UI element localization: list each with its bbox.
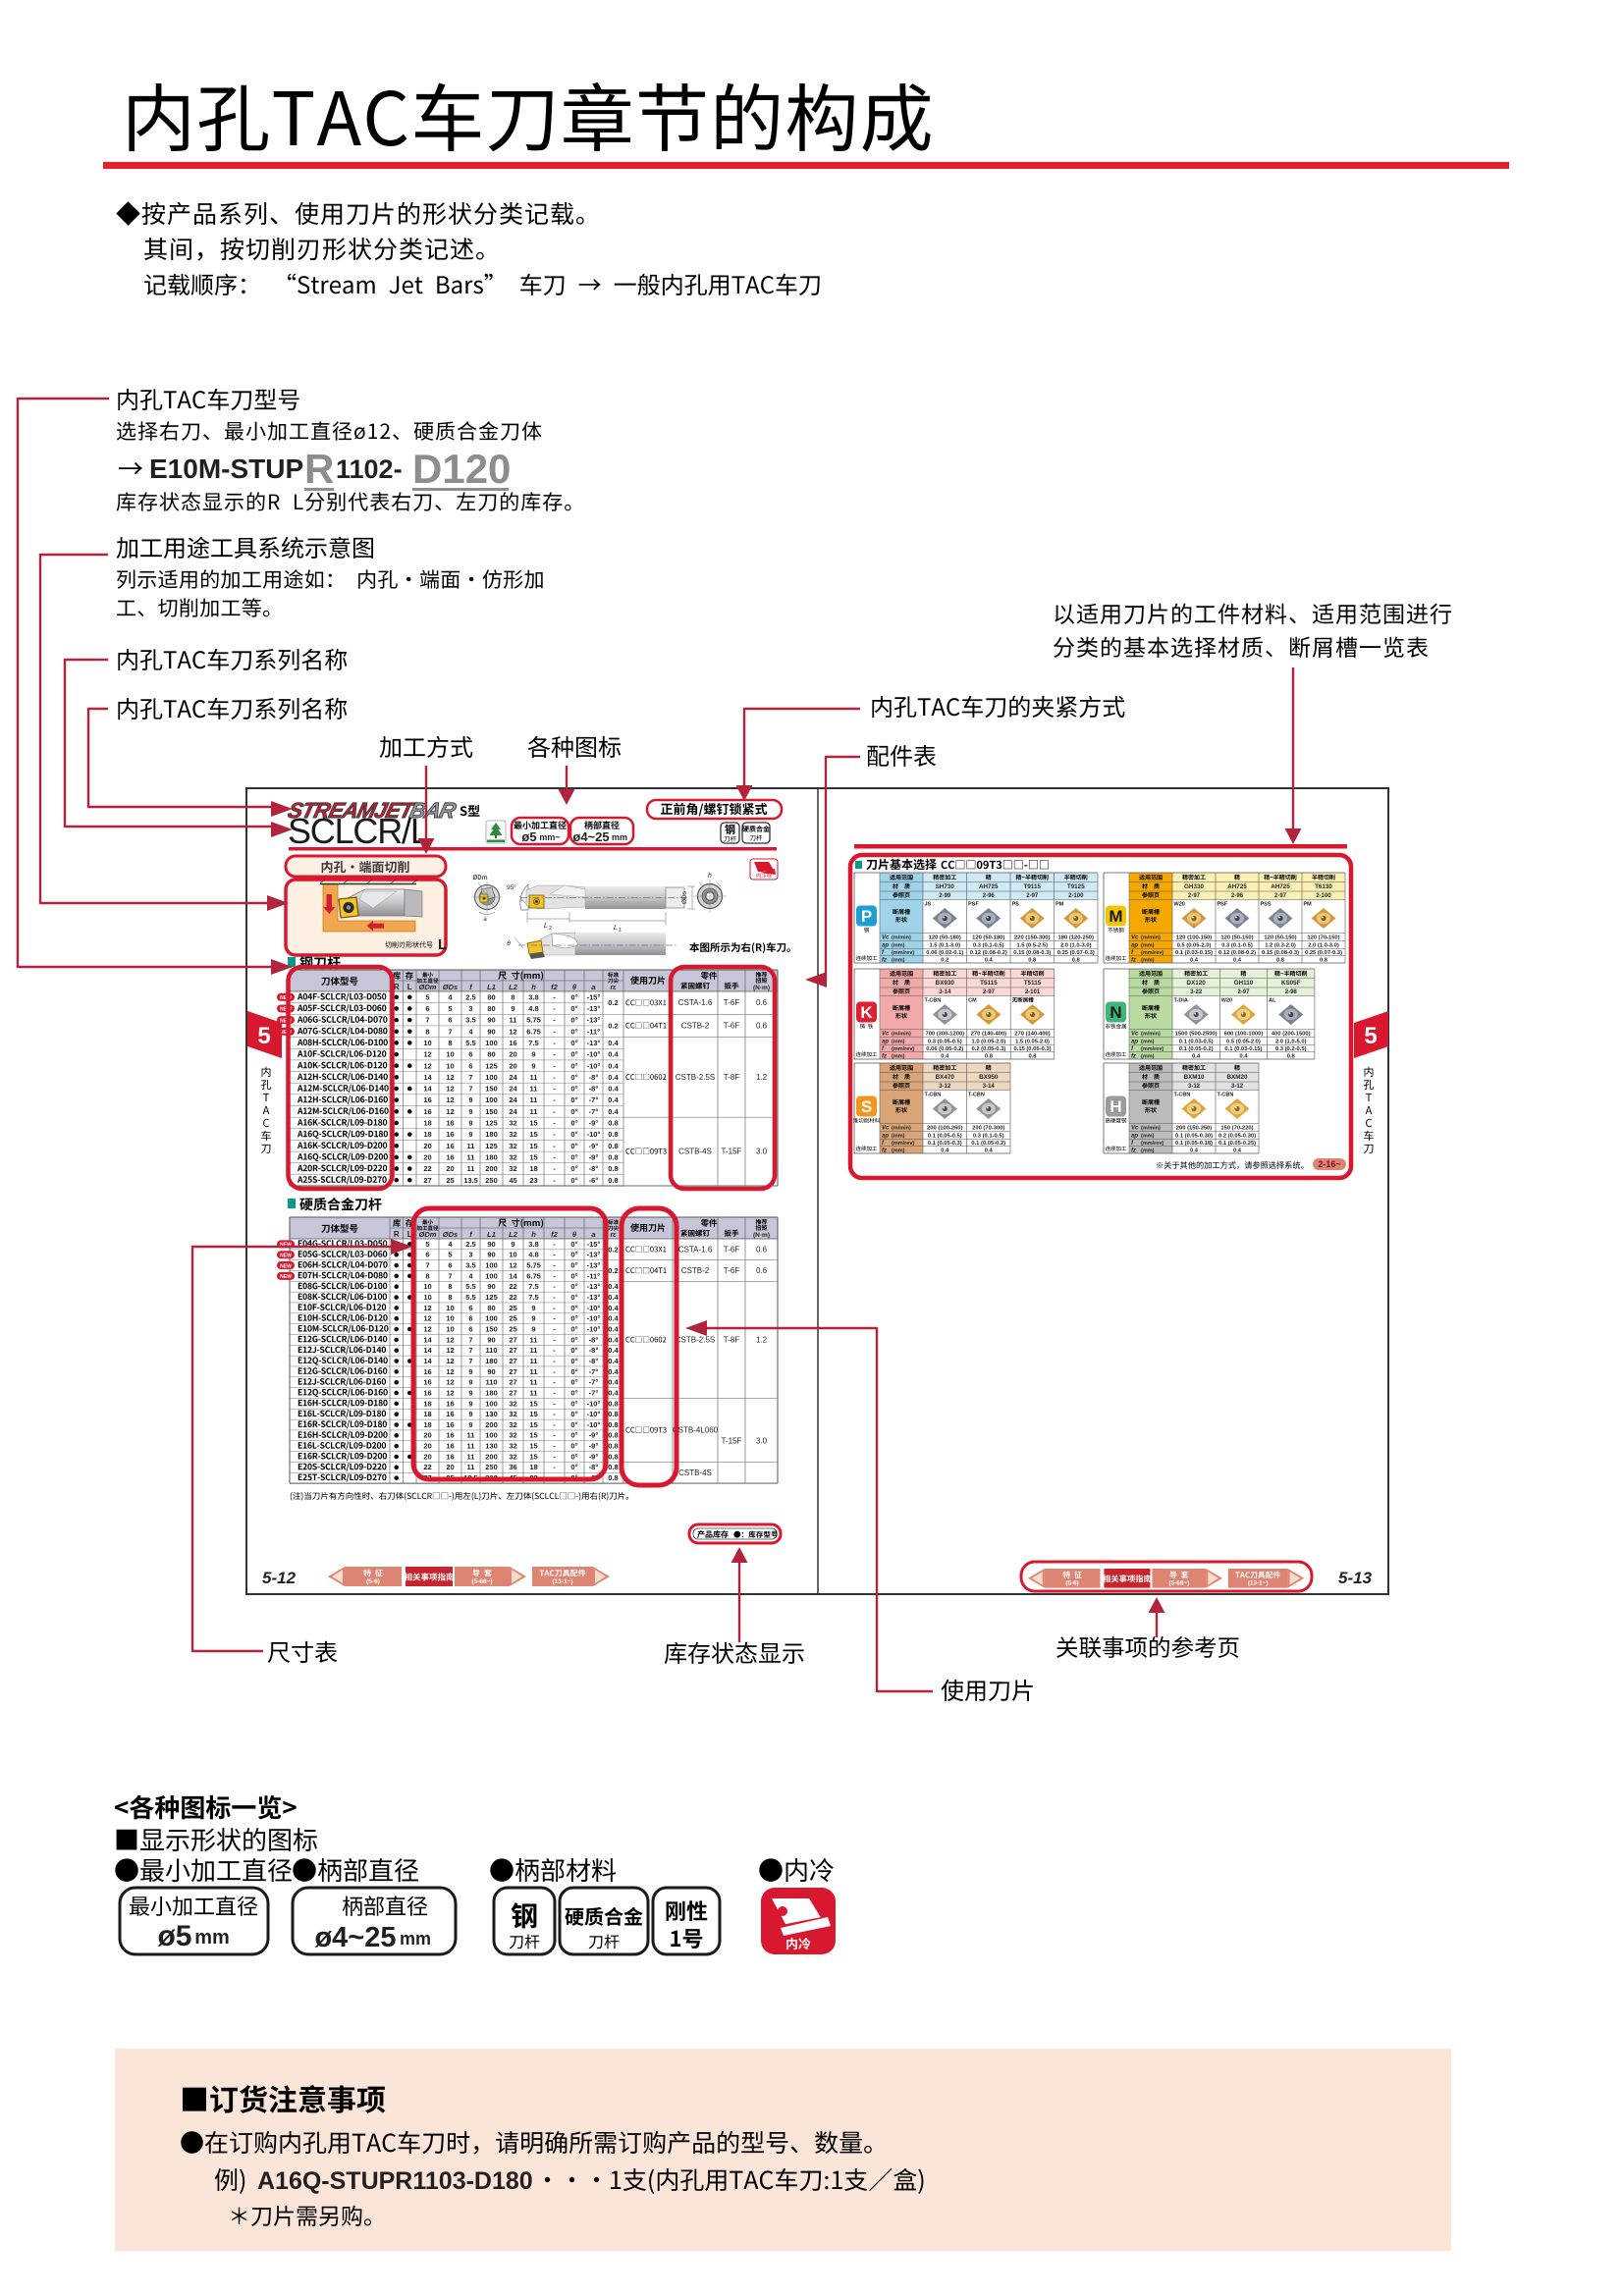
svg-text:0.6: 0.6 xyxy=(756,1245,768,1254)
svg-text:T-6F: T-6F xyxy=(724,1266,740,1275)
svg-text:NEW: NEW xyxy=(280,1263,292,1269)
svg-text:16: 16 xyxy=(509,1039,516,1047)
svg-text:16: 16 xyxy=(423,1367,431,1376)
svg-text:16: 16 xyxy=(446,1431,454,1440)
svg-text:125: 125 xyxy=(485,1142,498,1150)
svg-text:(mm/rev): (mm/rev) xyxy=(1141,950,1164,956)
svg-text:0.4: 0.4 xyxy=(608,1293,619,1302)
svg-text:10: 10 xyxy=(446,1314,454,1323)
svg-text:5: 5 xyxy=(448,1251,452,1259)
svg-text:0.2: 0.2 xyxy=(608,998,618,1007)
svg-text:180: 180 xyxy=(485,1357,498,1365)
svg-text:f2: f2 xyxy=(551,1230,558,1239)
svg-text:8: 8 xyxy=(511,992,514,1001)
svg-text:0.3 (0.2-0.5): 0.3 (0.2-0.5) xyxy=(1275,1046,1307,1052)
svg-text:BXM10: BXM10 xyxy=(1184,1074,1205,1081)
svg-text:1102-: 1102- xyxy=(336,454,403,484)
svg-text:2-97: 2-97 xyxy=(1026,893,1039,899)
svg-text:L: L xyxy=(614,923,618,932)
svg-text:7: 7 xyxy=(448,1027,452,1036)
svg-text:11: 11 xyxy=(467,1442,475,1451)
svg-text:-6°: -6° xyxy=(589,1176,599,1185)
svg-text:-13°: -13° xyxy=(587,1016,601,1025)
svg-text:PM: PM xyxy=(1056,902,1064,908)
svg-text:(mm/rev): (mm/rev) xyxy=(1141,1046,1164,1052)
svg-text:0°: 0° xyxy=(570,1107,577,1116)
svg-text:0.1 (0.05-0.2): 0.1 (0.05-0.2) xyxy=(971,1141,1005,1147)
svg-text:18: 18 xyxy=(423,1119,431,1128)
svg-text:2-97: 2-97 xyxy=(1188,893,1201,899)
svg-text:ap: ap xyxy=(1131,1040,1138,1045)
svg-text:0.4: 0.4 xyxy=(608,1357,619,1365)
svg-text:0°: 0° xyxy=(570,1260,577,1269)
svg-text:ø5: ø5 xyxy=(157,1920,191,1952)
svg-text:0°: 0° xyxy=(570,1399,577,1408)
svg-text:-10°: -10° xyxy=(587,1050,601,1059)
svg-text:T-15F: T-15F xyxy=(722,1436,742,1445)
svg-text:12: 12 xyxy=(446,1367,454,1376)
svg-text:2-99: 2-99 xyxy=(939,893,951,899)
svg-text:0°: 0° xyxy=(570,1061,577,1070)
svg-text:7: 7 xyxy=(468,1346,472,1355)
svg-text:0.8: 0.8 xyxy=(608,1164,618,1173)
svg-text:11: 11 xyxy=(467,1164,475,1173)
svg-text:9: 9 xyxy=(468,1367,472,1376)
svg-text:0.15 (0.05-0.3): 0.15 (0.05-0.3) xyxy=(1013,1046,1051,1052)
svg-text:0.06 (0.02-0.1): 0.06 (0.02-0.1) xyxy=(926,950,963,956)
svg-text:250: 250 xyxy=(485,1176,498,1185)
svg-text:9: 9 xyxy=(531,1061,535,1070)
svg-text:0.1 (0.03-0.15): 0.1 (0.03-0.15) xyxy=(1175,950,1213,956)
svg-text:L1: L1 xyxy=(487,1230,496,1239)
svg-text:0.8: 0.8 xyxy=(608,1152,618,1161)
svg-text:24: 24 xyxy=(509,1073,517,1082)
svg-text:0°: 0° xyxy=(570,1420,577,1429)
svg-text:T9125: T9125 xyxy=(1067,883,1085,890)
svg-text:0°: 0° xyxy=(570,1293,577,1302)
svg-text:PSF: PSF xyxy=(1218,902,1228,908)
svg-text:32: 32 xyxy=(509,1142,516,1150)
svg-text:45: 45 xyxy=(509,1176,516,1185)
svg-text:-8°: -8° xyxy=(589,1463,599,1471)
svg-text:90: 90 xyxy=(487,1335,495,1344)
svg-text:180 (120-250): 180 (120-250) xyxy=(1058,935,1094,941)
svg-text:2-100: 2-100 xyxy=(1068,893,1084,899)
svg-text:0.4: 0.4 xyxy=(608,1085,619,1094)
svg-text:0.4: 0.4 xyxy=(608,1367,619,1376)
svg-text:0°: 0° xyxy=(570,1142,577,1150)
svg-text:5: 5 xyxy=(425,1240,429,1249)
svg-text:0.4: 0.4 xyxy=(608,1335,619,1344)
svg-text:(13-1~): (13-1~) xyxy=(1248,1580,1269,1587)
svg-text:9: 9 xyxy=(511,1004,514,1013)
svg-text:T-CBN: T-CBN xyxy=(1174,1093,1191,1098)
svg-text:-10°: -10° xyxy=(587,1130,601,1139)
svg-text:5.5: 5.5 xyxy=(465,1282,475,1291)
svg-text:100: 100 xyxy=(485,1095,498,1104)
svg-text:2.5: 2.5 xyxy=(465,1240,475,1249)
svg-text:10: 10 xyxy=(509,1251,516,1259)
svg-text:KS05F: KS05F xyxy=(1281,980,1301,987)
svg-text:mm: mm xyxy=(612,832,627,842)
svg-text:-15°: -15° xyxy=(587,992,601,1001)
svg-text:120 (70-150): 120 (70-150) xyxy=(1307,935,1339,941)
svg-text:12: 12 xyxy=(446,1107,454,1116)
svg-text:6: 6 xyxy=(468,1050,472,1059)
svg-text:125: 125 xyxy=(485,1119,498,1128)
svg-text:Vc: Vc xyxy=(882,935,890,941)
svg-text:12: 12 xyxy=(423,1324,431,1333)
svg-text:80: 80 xyxy=(487,992,495,1001)
svg-text:32: 32 xyxy=(509,1119,516,1128)
svg-text:AL: AL xyxy=(1269,998,1276,1004)
svg-text:-7°: -7° xyxy=(589,1367,599,1376)
svg-text:0.4: 0.4 xyxy=(608,1073,619,1082)
svg-text:5.5: 5.5 xyxy=(465,1039,475,1047)
svg-text:400 (200-1500): 400 (200-1500) xyxy=(1272,1032,1311,1038)
svg-text:0.15 (0.08-0.3): 0.15 (0.08-0.3) xyxy=(1013,950,1051,956)
svg-text:T6130: T6130 xyxy=(1315,883,1332,890)
svg-text:ØDs: ØDs xyxy=(443,1230,458,1239)
svg-text:0.8: 0.8 xyxy=(608,1142,618,1150)
svg-text:-10°: -10° xyxy=(587,1324,601,1333)
svg-text:ØDm: ØDm xyxy=(419,1230,437,1239)
svg-text:22: 22 xyxy=(423,1164,431,1173)
svg-text:0°: 0° xyxy=(570,1016,577,1025)
svg-text:25: 25 xyxy=(446,1176,454,1185)
svg-text:-8°: -8° xyxy=(589,1335,599,1344)
svg-text:12: 12 xyxy=(423,1304,431,1312)
svg-text:-15°: -15° xyxy=(587,1240,601,1249)
svg-text:95°: 95° xyxy=(507,883,516,891)
svg-text:9: 9 xyxy=(468,1378,472,1387)
svg-text:11: 11 xyxy=(467,1142,475,1150)
svg-text:110: 110 xyxy=(485,1378,497,1387)
svg-text:3-14: 3-14 xyxy=(983,1084,996,1090)
svg-text:0°: 0° xyxy=(570,1388,577,1397)
svg-text:PS: PS xyxy=(1012,902,1020,908)
svg-text:T-CBN: T-CBN xyxy=(968,1093,985,1098)
svg-text:-10°: -10° xyxy=(587,1399,601,1408)
svg-text:0.1 (0.05-0.2): 0.1 (0.05-0.2) xyxy=(1179,1046,1214,1052)
svg-text:0.8: 0.8 xyxy=(608,1431,618,1440)
svg-text:180: 180 xyxy=(485,1130,498,1139)
svg-text:AH725: AH725 xyxy=(1271,883,1290,890)
svg-text:120 (50-150): 120 (50-150) xyxy=(1220,935,1253,941)
svg-text:-7°: -7° xyxy=(589,1378,599,1387)
svg-text:h: h xyxy=(531,983,536,991)
svg-text:15: 15 xyxy=(529,1399,537,1408)
svg-text:0.3 (0.1-0.5): 0.3 (0.1-0.5) xyxy=(973,1134,1004,1140)
svg-text:10: 10 xyxy=(423,1039,431,1047)
svg-text:T5115: T5115 xyxy=(980,980,998,987)
svg-text:0°: 0° xyxy=(570,1004,577,1013)
svg-text:ØDs: ØDs xyxy=(443,983,458,991)
svg-text:7: 7 xyxy=(425,1260,429,1269)
svg-text:(mm/rev): (mm/rev) xyxy=(892,1046,914,1052)
svg-text:(N·m): (N·m) xyxy=(753,1232,770,1239)
svg-text:Vc: Vc xyxy=(1131,1126,1139,1132)
svg-text:7: 7 xyxy=(468,1357,472,1365)
svg-text:25: 25 xyxy=(509,1304,516,1312)
svg-text:14: 14 xyxy=(423,1073,432,1082)
svg-text:1.5 (0.1-3.0): 1.5 (0.1-3.0) xyxy=(929,943,960,949)
svg-text:0.2 (0.05-0.30): 0.2 (0.05-0.30) xyxy=(1218,1134,1256,1140)
svg-text:f2: f2 xyxy=(551,983,558,991)
svg-text:P: P xyxy=(861,907,872,926)
svg-text:200 (150-350): 200 (150-350) xyxy=(1176,1126,1212,1132)
svg-text:12: 12 xyxy=(446,1085,454,1094)
svg-text:L: L xyxy=(544,921,548,930)
svg-text:R: R xyxy=(304,446,334,492)
svg-text:27: 27 xyxy=(509,1378,516,1387)
svg-text:(mm): (mm) xyxy=(892,943,905,949)
svg-text:27: 27 xyxy=(509,1335,516,1344)
svg-text:0.8: 0.8 xyxy=(608,1130,618,1139)
svg-text:11: 11 xyxy=(530,1095,538,1104)
svg-text:16: 16 xyxy=(446,1119,454,1128)
svg-text:32: 32 xyxy=(509,1420,516,1429)
svg-text:15: 15 xyxy=(529,1410,537,1418)
svg-text:L1: L1 xyxy=(487,983,496,991)
svg-text:(13-1~): (13-1~) xyxy=(552,1578,572,1585)
svg-text:0.4: 0.4 xyxy=(608,1324,619,1333)
svg-text:90: 90 xyxy=(487,1240,495,1249)
svg-text:-10°: -10° xyxy=(587,1304,601,1312)
svg-text:15: 15 xyxy=(529,1442,537,1451)
svg-text:24: 24 xyxy=(509,1107,517,1116)
svg-text:T-CBN: T-CBN xyxy=(925,1093,942,1098)
svg-text:0.1 (0.05-0.18): 0.1 (0.05-0.18) xyxy=(1175,1141,1213,1147)
svg-text:0°: 0° xyxy=(570,1152,577,1161)
svg-text:16: 16 xyxy=(423,1095,431,1104)
svg-text:(mm/rev): (mm/rev) xyxy=(892,1141,914,1147)
svg-text:-13°: -13° xyxy=(587,1004,601,1013)
svg-text:0°: 0° xyxy=(570,1039,577,1047)
svg-text:0.12 (0.08-0.2): 0.12 (0.08-0.2) xyxy=(1218,950,1256,956)
svg-text:0°: 0° xyxy=(570,1463,577,1471)
svg-text:ØDs: ØDs xyxy=(681,890,688,904)
svg-text:125: 125 xyxy=(485,1293,498,1302)
svg-text:0°: 0° xyxy=(570,1176,577,1185)
svg-text:DX120: DX120 xyxy=(1187,980,1207,987)
svg-text:L2: L2 xyxy=(509,1230,518,1239)
svg-text:(mm): (mm) xyxy=(892,1040,905,1045)
svg-text:2-96: 2-96 xyxy=(983,893,996,899)
svg-text:12: 12 xyxy=(446,1388,454,1397)
svg-text:200: 200 xyxy=(485,1452,498,1461)
svg-text:100: 100 xyxy=(485,1039,498,1047)
svg-text:0°: 0° xyxy=(570,1095,577,1104)
svg-text:ap: ap xyxy=(1131,1134,1138,1140)
svg-text:(m/min): (m/min) xyxy=(892,1032,911,1038)
svg-text:6.75: 6.75 xyxy=(526,1027,541,1036)
svg-text:200 (100-260): 200 (100-260) xyxy=(927,1126,962,1132)
svg-text:10: 10 xyxy=(446,1050,454,1059)
svg-text:3: 3 xyxy=(468,1004,472,1013)
svg-text:12: 12 xyxy=(446,1346,454,1355)
svg-text:CSTB-2.5S: CSTB-2.5S xyxy=(676,1335,715,1344)
svg-text:7: 7 xyxy=(468,1085,472,1094)
svg-text:36: 36 xyxy=(509,1463,516,1471)
svg-text:10: 10 xyxy=(446,1304,454,1312)
svg-text:0°: 0° xyxy=(570,1085,577,1094)
svg-text:CM: CM xyxy=(968,998,977,1004)
svg-text:10: 10 xyxy=(423,1282,431,1291)
svg-text:ap: ap xyxy=(1131,943,1138,949)
svg-text:14: 14 xyxy=(509,1271,517,1280)
svg-text:R: R xyxy=(394,983,400,991)
svg-text:T-8F: T-8F xyxy=(724,1073,740,1082)
svg-text:14: 14 xyxy=(423,1335,432,1344)
svg-text:18: 18 xyxy=(423,1420,431,1429)
svg-text:0.4: 0.4 xyxy=(608,1388,619,1397)
svg-text:0.1 (0.05-0.3): 0.1 (0.05-0.3) xyxy=(928,1141,962,1147)
svg-text:D120: D120 xyxy=(412,446,511,492)
svg-text:5.5: 5.5 xyxy=(465,1293,475,1302)
svg-text:S: S xyxy=(861,1097,872,1116)
svg-text:20: 20 xyxy=(446,1463,454,1471)
svg-text:150: 150 xyxy=(485,1107,498,1116)
svg-text:M: M xyxy=(1109,907,1122,926)
svg-text:2-97: 2-97 xyxy=(983,989,996,995)
svg-text:0.6: 0.6 xyxy=(756,998,768,1007)
svg-text:(mm/rev): (mm/rev) xyxy=(892,950,914,956)
svg-text:200: 200 xyxy=(485,1164,498,1173)
svg-text:Vc: Vc xyxy=(882,1032,890,1038)
svg-text:ø5: ø5 xyxy=(521,829,536,844)
svg-text:-9°: -9° xyxy=(589,1142,599,1150)
svg-text:18: 18 xyxy=(423,1130,431,1139)
svg-text:11: 11 xyxy=(510,1016,517,1025)
svg-text:2-100: 2-100 xyxy=(1316,893,1331,899)
svg-text:11: 11 xyxy=(467,1152,475,1161)
svg-text:12: 12 xyxy=(446,1095,454,1104)
svg-text:NEW: NEW xyxy=(280,1274,292,1280)
svg-text:0.1 (0.05-0.25): 0.1 (0.05-0.25) xyxy=(1218,1141,1256,1147)
svg-text:20: 20 xyxy=(446,1164,454,1173)
svg-text:(m/min): (m/min) xyxy=(1141,1032,1161,1038)
svg-text:9: 9 xyxy=(531,1050,535,1059)
svg-text:12: 12 xyxy=(423,1050,431,1059)
svg-text:7.5: 7.5 xyxy=(528,1293,538,1302)
svg-text:2-16~: 2-16~ xyxy=(1318,1159,1340,1169)
svg-text:9: 9 xyxy=(531,1324,535,1333)
svg-text:rε: rε xyxy=(610,985,617,991)
svg-text:14: 14 xyxy=(423,1357,432,1365)
svg-text:AH725: AH725 xyxy=(979,883,999,890)
svg-text:CSTB-4S: CSTB-4S xyxy=(678,1468,712,1477)
svg-text:0°: 0° xyxy=(570,1346,577,1355)
svg-text:18: 18 xyxy=(423,1399,431,1408)
svg-text:110: 110 xyxy=(485,1346,497,1355)
svg-text:7: 7 xyxy=(468,1073,472,1082)
svg-text:a: a xyxy=(591,983,595,991)
svg-text:18: 18 xyxy=(529,1164,537,1173)
svg-text:h: h xyxy=(531,1230,536,1239)
svg-text:90: 90 xyxy=(487,1367,495,1376)
svg-text:0°: 0° xyxy=(570,1271,577,1280)
svg-text:11: 11 xyxy=(530,1367,538,1376)
svg-text:rε: rε xyxy=(610,1232,617,1239)
svg-text:0°: 0° xyxy=(570,1335,577,1344)
svg-text:0.5 (0.05-2.0): 0.5 (0.05-2.0) xyxy=(1226,1040,1261,1045)
svg-text:20: 20 xyxy=(423,1152,431,1161)
svg-text:T-CBN: T-CBN xyxy=(925,998,942,1004)
svg-text:0.4: 0.4 xyxy=(608,1314,619,1323)
svg-text:0.8: 0.8 xyxy=(608,1399,618,1408)
svg-text:16: 16 xyxy=(446,1410,454,1418)
svg-text:12: 12 xyxy=(423,1314,431,1323)
svg-text:0.2: 0.2 xyxy=(608,1266,618,1275)
svg-text:90: 90 xyxy=(487,1282,495,1291)
svg-text:32: 32 xyxy=(509,1164,516,1173)
svg-text:T-6F: T-6F xyxy=(724,1245,740,1254)
svg-text:32: 32 xyxy=(509,1431,516,1440)
svg-text:0.8: 0.8 xyxy=(608,1473,618,1482)
svg-text:T9115: T9115 xyxy=(1023,883,1041,890)
svg-text:2-97: 2-97 xyxy=(1237,989,1250,995)
svg-text:0.4: 0.4 xyxy=(608,1039,619,1047)
svg-text:12: 12 xyxy=(446,1073,454,1082)
svg-text:L: L xyxy=(407,983,412,991)
svg-text:0.2: 0.2 xyxy=(608,1245,618,1254)
svg-text:23: 23 xyxy=(529,1176,537,1185)
svg-text:3.8: 3.8 xyxy=(528,992,538,1001)
svg-text:8: 8 xyxy=(448,1293,452,1302)
svg-text:16: 16 xyxy=(446,1420,454,1429)
svg-text:PM: PM xyxy=(1304,902,1313,908)
svg-text:3.5: 3.5 xyxy=(465,1016,475,1025)
svg-text:0°: 0° xyxy=(570,1304,577,1312)
svg-text:0.8: 0.8 xyxy=(608,1119,618,1128)
svg-text:24: 24 xyxy=(509,1085,517,1094)
svg-text:150: 150 xyxy=(485,1324,498,1333)
svg-text:3-12: 3-12 xyxy=(939,1084,951,1090)
svg-text:0.4: 0.4 xyxy=(608,1378,619,1387)
svg-text:5: 5 xyxy=(1364,1023,1377,1049)
svg-text:0°: 0° xyxy=(570,1378,577,1387)
svg-text:(mm): (mm) xyxy=(892,1134,905,1140)
svg-text:GH330: GH330 xyxy=(1184,883,1204,890)
svg-text:7.5: 7.5 xyxy=(528,1282,538,1291)
svg-text:12: 12 xyxy=(446,1378,454,1387)
svg-text:0.4: 0.4 xyxy=(608,1107,619,1116)
svg-text:SCLCR/L: SCLCR/L xyxy=(288,811,429,851)
svg-text:0°: 0° xyxy=(570,1314,577,1323)
svg-text:700 (300-1200): 700 (300-1200) xyxy=(925,1032,964,1038)
svg-text:-13°: -13° xyxy=(587,1282,601,1291)
svg-text:T-8F: T-8F xyxy=(724,1335,740,1344)
svg-text:11: 11 xyxy=(530,1378,538,1387)
svg-text:80: 80 xyxy=(487,1004,495,1013)
svg-text:11: 11 xyxy=(530,1357,538,1365)
svg-text:100: 100 xyxy=(485,1431,498,1440)
svg-text:3: 3 xyxy=(468,1251,472,1259)
svg-text:-9°: -9° xyxy=(589,1452,599,1461)
svg-text:600 (100-1000): 600 (100-1000) xyxy=(1224,1032,1264,1038)
svg-text:BX930: BX930 xyxy=(936,980,955,987)
svg-text:-7°: -7° xyxy=(589,1095,599,1104)
svg-text:32: 32 xyxy=(509,1152,516,1161)
svg-text:130: 130 xyxy=(485,1410,498,1418)
svg-text:9: 9 xyxy=(531,1314,535,1323)
svg-text:0.4: 0.4 xyxy=(608,1282,619,1291)
svg-text:CSTB-2.5S: CSTB-2.5S xyxy=(676,1073,715,1082)
svg-text:200: 200 xyxy=(485,1420,498,1429)
svg-text:22: 22 xyxy=(423,1463,431,1471)
svg-text:-8°: -8° xyxy=(589,1085,599,1094)
